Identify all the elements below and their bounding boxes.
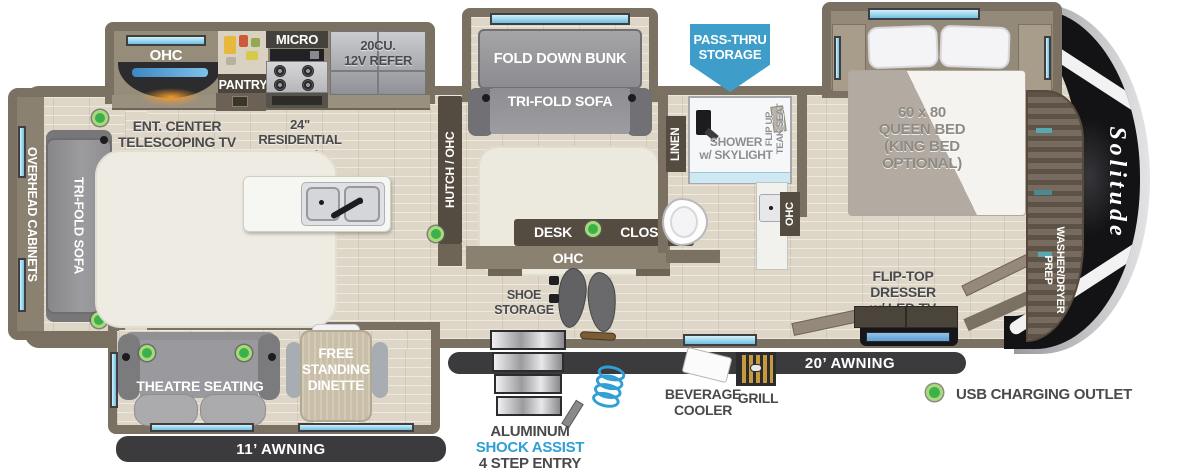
cabinet-foot [488, 269, 522, 276]
pantry-food-icon [246, 51, 258, 60]
burner-icon [274, 65, 286, 77]
rv-floorplan: Solitude OVERHEAD CABINETS TRI-FOLD SOFA… [0, 0, 1200, 476]
burner-icon [302, 65, 314, 77]
main-awning-label: 20’ AWNING [790, 355, 910, 372]
entry-step [492, 352, 564, 372]
window-icon [683, 334, 757, 346]
hutch-lower-cabinet [438, 244, 462, 266]
bath-threshold [666, 250, 720, 263]
dresser-seam [905, 307, 907, 327]
bunk-sofa-label: TRI-FOLD SOFA [480, 93, 640, 109]
bed-label: 60 x 80QUEEN BED (KING BEDOPTIONAL) [852, 104, 992, 172]
steps-label: ALUMINUM SHOCK ASSIST 4 STEP ENTRY [466, 424, 594, 472]
entry-step [490, 330, 566, 350]
drain-dot [319, 200, 324, 205]
rear-awning-label: 11’ AWNING [116, 441, 446, 458]
hanging-clothes-icon [1036, 128, 1052, 133]
cupholder-dot [122, 353, 130, 361]
window-icon [126, 35, 206, 46]
fold-down-bunk: FOLD DOWN BUNK [478, 29, 642, 89]
cabinet-foot [636, 269, 670, 276]
grill-center [750, 364, 762, 372]
teak-seat-label: FLIP UPTEAK SEAT [764, 96, 786, 162]
cupholder-dot [268, 353, 276, 361]
pantry-food-icon [226, 57, 236, 65]
bunk-ohc-cabinet: OHC [466, 246, 670, 269]
pantry-food-icon [251, 38, 260, 47]
overhead-cabinets-label: OVERHEAD CABINETS [20, 100, 44, 328]
cupholder-dot [628, 94, 636, 102]
desk-label: DESK [520, 224, 586, 240]
usb-outlet-dot [236, 345, 252, 361]
pantry-food-icon [239, 35, 248, 47]
theatre-cushion [134, 394, 198, 426]
burner-icon [302, 79, 314, 91]
pantry-food-icon [224, 36, 236, 54]
window-icon [834, 36, 841, 80]
shoe-storage-label: SHOESTORAGE [492, 288, 556, 318]
entry-step [496, 396, 562, 416]
dresser-tv-screen [866, 332, 950, 342]
oven-drawer-handle [272, 96, 322, 105]
usb-outlet-dot [139, 345, 155, 361]
window-icon [868, 8, 980, 20]
washer-dryer-label: WASHER/DRYERPREP [1042, 210, 1066, 330]
window-icon [110, 352, 118, 408]
pantry-label: PANTRY [218, 74, 268, 95]
cupholder-dot [482, 94, 490, 102]
hutch-label: HUTCH / OHC [440, 100, 460, 240]
drain-dot [769, 206, 773, 210]
brand-logo: Solitude [1100, 98, 1130, 268]
usb-outlet-dot [428, 226, 444, 242]
fridge-label: 20CU.12V REFER [332, 38, 424, 68]
hanging-clothes-icon [1034, 190, 1052, 195]
theatre-label: THEATRE SEATING [128, 378, 272, 394]
grill-label: GRILL [732, 390, 784, 406]
pillow-icon [939, 25, 1010, 69]
shoe-bench-tab [549, 276, 559, 285]
usb-legend-label: USB CHARGING OUTLET [956, 386, 1176, 403]
usb-outlet-dot [585, 221, 601, 237]
pillow-icon [867, 25, 938, 69]
micro-label: MICRO [266, 31, 328, 48]
microwave-door-icon [310, 51, 319, 59]
fridge-door-line [330, 70, 426, 72]
dinette-label: FREESTANDINGDINETTE [294, 346, 378, 394]
counter-sink-icon [232, 96, 248, 107]
window-icon [1044, 36, 1051, 80]
usb-legend-dot [926, 384, 943, 401]
burner-icon [274, 79, 286, 91]
entry-step [494, 374, 562, 394]
kitchen-ohc-label: OHC [114, 47, 218, 63]
window-icon [490, 13, 630, 25]
window-icon [150, 423, 254, 432]
fireplace-glow-icon [140, 88, 202, 106]
tv-screen-icon [132, 68, 208, 77]
bath-ohc-label: OHC [780, 192, 800, 236]
linen-label: LINEN [666, 116, 686, 172]
pass-thru-label: PASS-THRUSTORAGE [690, 32, 770, 62]
toilet-bowl-ring [670, 206, 698, 238]
theatre-cushion [200, 394, 266, 426]
window-icon [298, 423, 414, 432]
